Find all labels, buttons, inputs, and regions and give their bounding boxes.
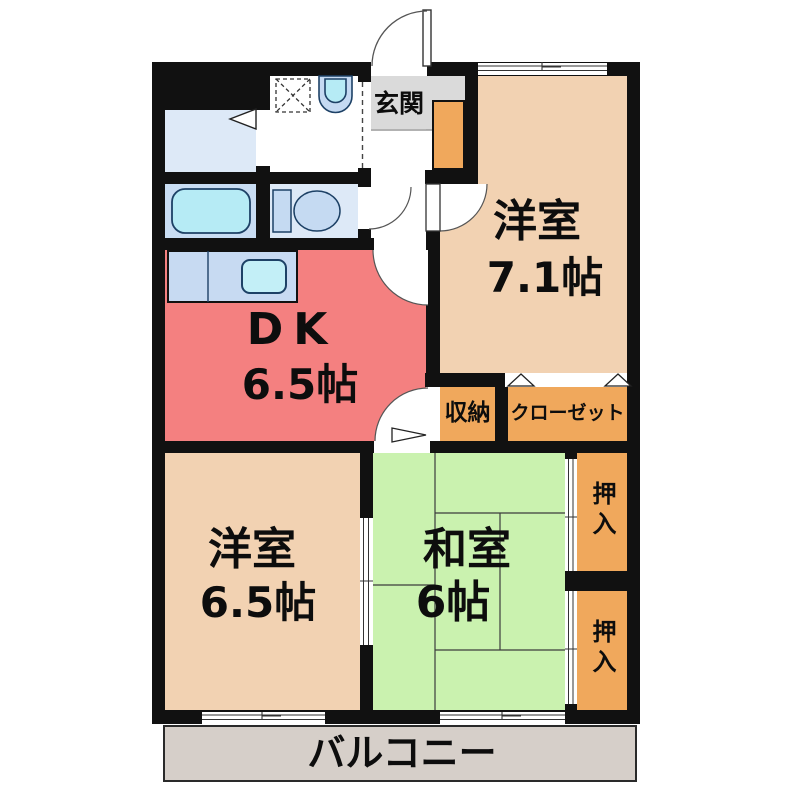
hallway <box>371 129 426 238</box>
western1-size: 7.1帖 <box>447 252 643 304</box>
wall-right <box>627 62 640 724</box>
wall-dk-western1 <box>426 231 440 387</box>
wall-dk-top-a <box>152 238 374 250</box>
top-window-opening <box>478 63 607 75</box>
room-toilet <box>270 184 358 238</box>
wall-western2-japanese-a <box>360 453 373 518</box>
oshiire-bottom-label: 押入 <box>586 617 618 681</box>
room-bath-upper <box>165 110 256 172</box>
kitchen-sink <box>241 259 287 294</box>
closet-label: クローゼット <box>508 399 627 427</box>
japanese-size: 6帖 <box>363 577 543 629</box>
wall-bath-right-a <box>256 76 270 108</box>
wall-corridor-left-c <box>358 229 371 238</box>
closet-door-opening <box>505 373 627 387</box>
western2-label: 洋室 <box>162 524 342 576</box>
room-washroom <box>270 76 358 172</box>
balcony-window-left-opening <box>202 712 325 724</box>
western2-size: 6.5帖 <box>160 577 356 629</box>
room-western1-upper <box>478 76 627 184</box>
wall-oshiire-left-b <box>565 704 577 710</box>
oshiire-top-label: 押入 <box>586 479 618 543</box>
wall-corridor-left-a <box>358 76 371 82</box>
sliding-opening-oshiire-top <box>565 459 577 571</box>
sliding-opening-oshiire-bottom <box>565 591 577 704</box>
balcony-window-right-opening <box>440 712 565 724</box>
wall-western1-bottom <box>425 373 505 387</box>
wall-cabinet-stub <box>425 170 478 184</box>
wall-topleft-block <box>152 62 270 110</box>
dk-size: 6.5帖 <box>210 360 390 410</box>
shoe-cabinet <box>432 100 465 170</box>
japanese-label: 和室 <box>377 524 557 576</box>
floor-plan: 玄関 洋室 7.1帖 DK 6.5帖 収納 クローゼット 洋室 6.5帖 和室 … <box>0 0 800 800</box>
wall-middle-band-a <box>152 441 374 453</box>
western1-label: 洋室 <box>447 196 627 248</box>
wall-bath-horizontal <box>152 172 371 184</box>
wall-oshiire-divider <box>565 571 640 591</box>
room-bath-tub <box>165 184 256 238</box>
entrance-door-icon <box>372 10 431 66</box>
genkan-label: 玄関 <box>368 88 430 118</box>
balcony-label: バルコニー <box>282 731 522 775</box>
wall-genkan-right <box>465 62 478 172</box>
wall-western2-japanese-b <box>360 645 373 710</box>
wall-middle-band-b <box>430 441 640 453</box>
entrance-opening <box>371 62 427 76</box>
storage-label: 収納 <box>438 399 497 427</box>
dk-label: DK <box>212 305 372 355</box>
